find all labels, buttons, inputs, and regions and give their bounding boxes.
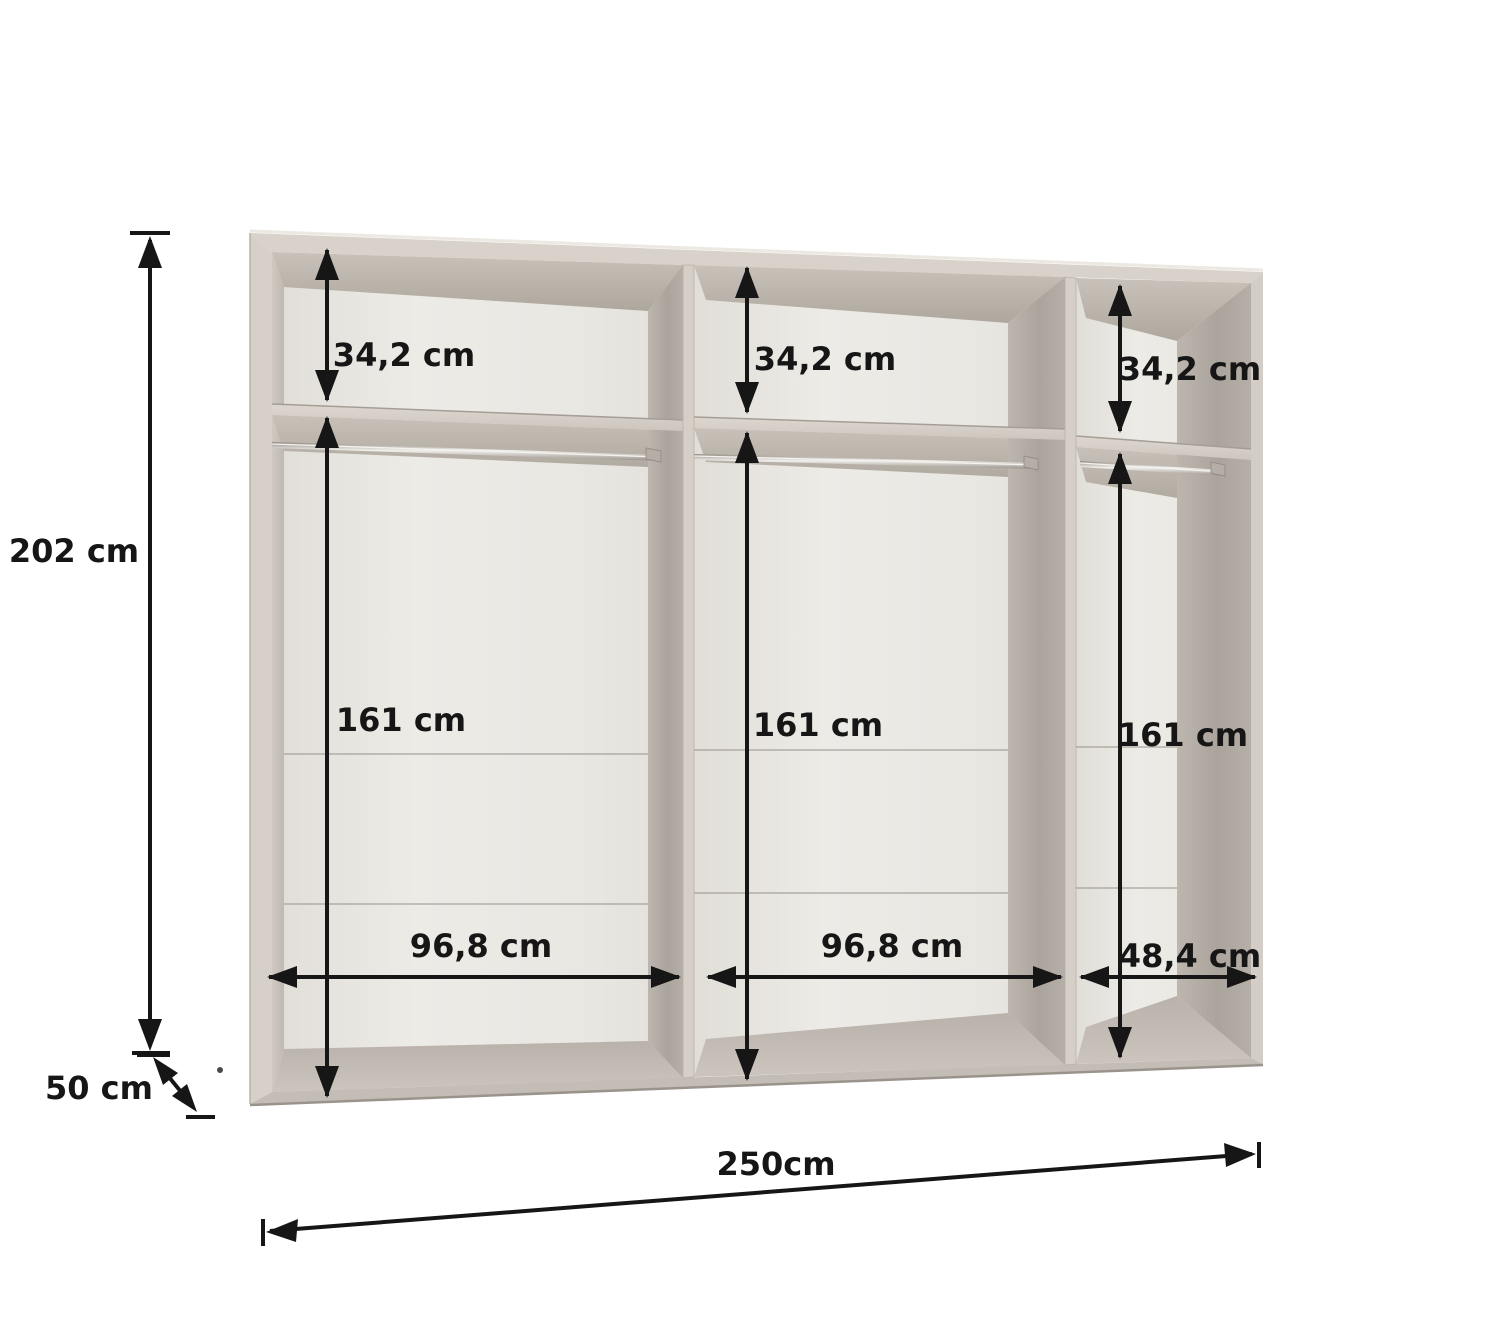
frame-left-edge (250, 233, 272, 1104)
divider-front-edge-1 (683, 265, 694, 1078)
arrowhead-down (138, 1019, 162, 1051)
arrowhead-right (1224, 1143, 1256, 1167)
divider-front-edge-2 (1065, 277, 1076, 1065)
label-shelf-height-left: 34,2 cm (333, 336, 475, 374)
dim-total-height: 202 cm (9, 233, 170, 1053)
label-shelf-height-right: 34,2 cm (1119, 350, 1261, 388)
dim-total-width: 250cm (263, 1142, 1259, 1246)
arrowhead-up (138, 236, 162, 268)
wardrobe-dimension-diagram: 202 cm 50 cm 250cm 34,2 cm (0, 0, 1500, 1327)
stray-dot (217, 1067, 223, 1073)
label-hanging-height-middle: 161 cm (753, 706, 883, 744)
label-hanging-height-left: 161 cm (336, 701, 466, 739)
label-total-depth: 50 cm (45, 1069, 153, 1107)
wardrobe-dimension-diagram-page: 202 cm 50 cm 250cm 34,2 cm (0, 0, 1500, 1327)
dim-total-depth: 50 cm (45, 1055, 215, 1117)
label-total-height: 202 cm (9, 532, 139, 570)
label-width-middle: 96,8 cm (821, 927, 963, 965)
left-panel-inner-face (272, 252, 284, 1092)
divider-side-face-left (648, 265, 683, 1078)
label-width-right: 48,4 cm (1119, 937, 1261, 975)
arrowhead-left (266, 1219, 298, 1242)
label-total-width: 250cm (716, 1145, 835, 1183)
label-hanging-height-right: 161 cm (1118, 716, 1248, 754)
label-shelf-height-middle: 34,2 cm (754, 340, 896, 378)
divider-side-face-middle (1008, 277, 1065, 1065)
label-width-left: 96,8 cm (410, 927, 552, 965)
